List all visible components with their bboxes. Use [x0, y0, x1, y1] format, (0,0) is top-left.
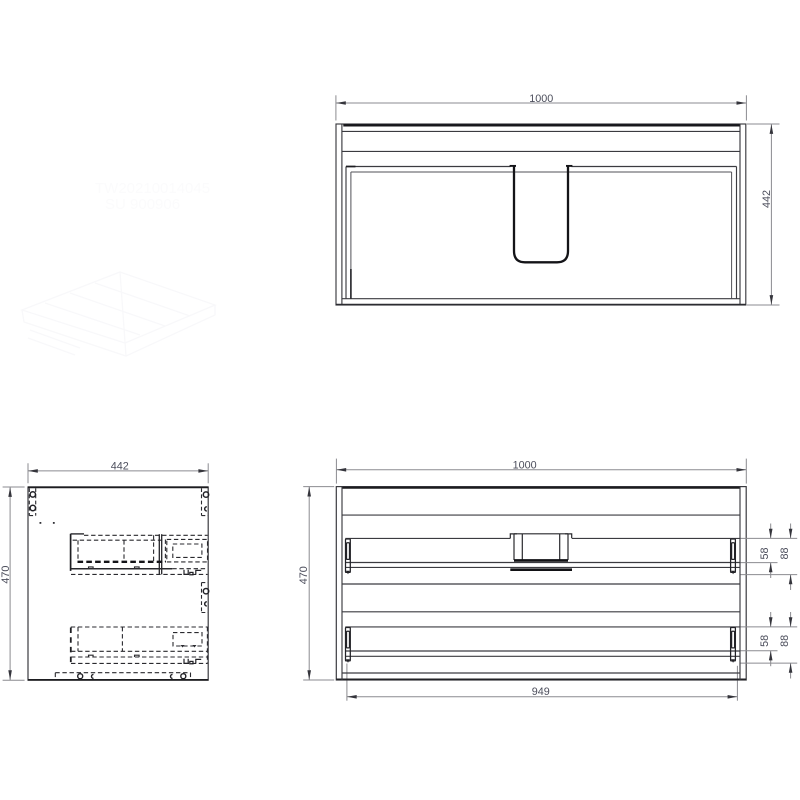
svg-text:SU 900906: SU 900906	[105, 196, 180, 213]
svg-text:58: 58	[759, 547, 771, 559]
svg-text:88: 88	[779, 547, 791, 559]
svg-text:470: 470	[0, 566, 12, 584]
svg-text:88: 88	[779, 635, 791, 647]
svg-text:442: 442	[111, 460, 129, 472]
svg-text:470: 470	[298, 566, 310, 584]
svg-text:58: 58	[759, 635, 771, 647]
svg-text:442: 442	[761, 190, 773, 208]
svg-text:1000: 1000	[513, 460, 537, 472]
svg-text:TW20210014045: TW20210014045	[95, 180, 210, 197]
svg-text:1000: 1000	[529, 93, 553, 105]
svg-text:949: 949	[532, 686, 550, 698]
